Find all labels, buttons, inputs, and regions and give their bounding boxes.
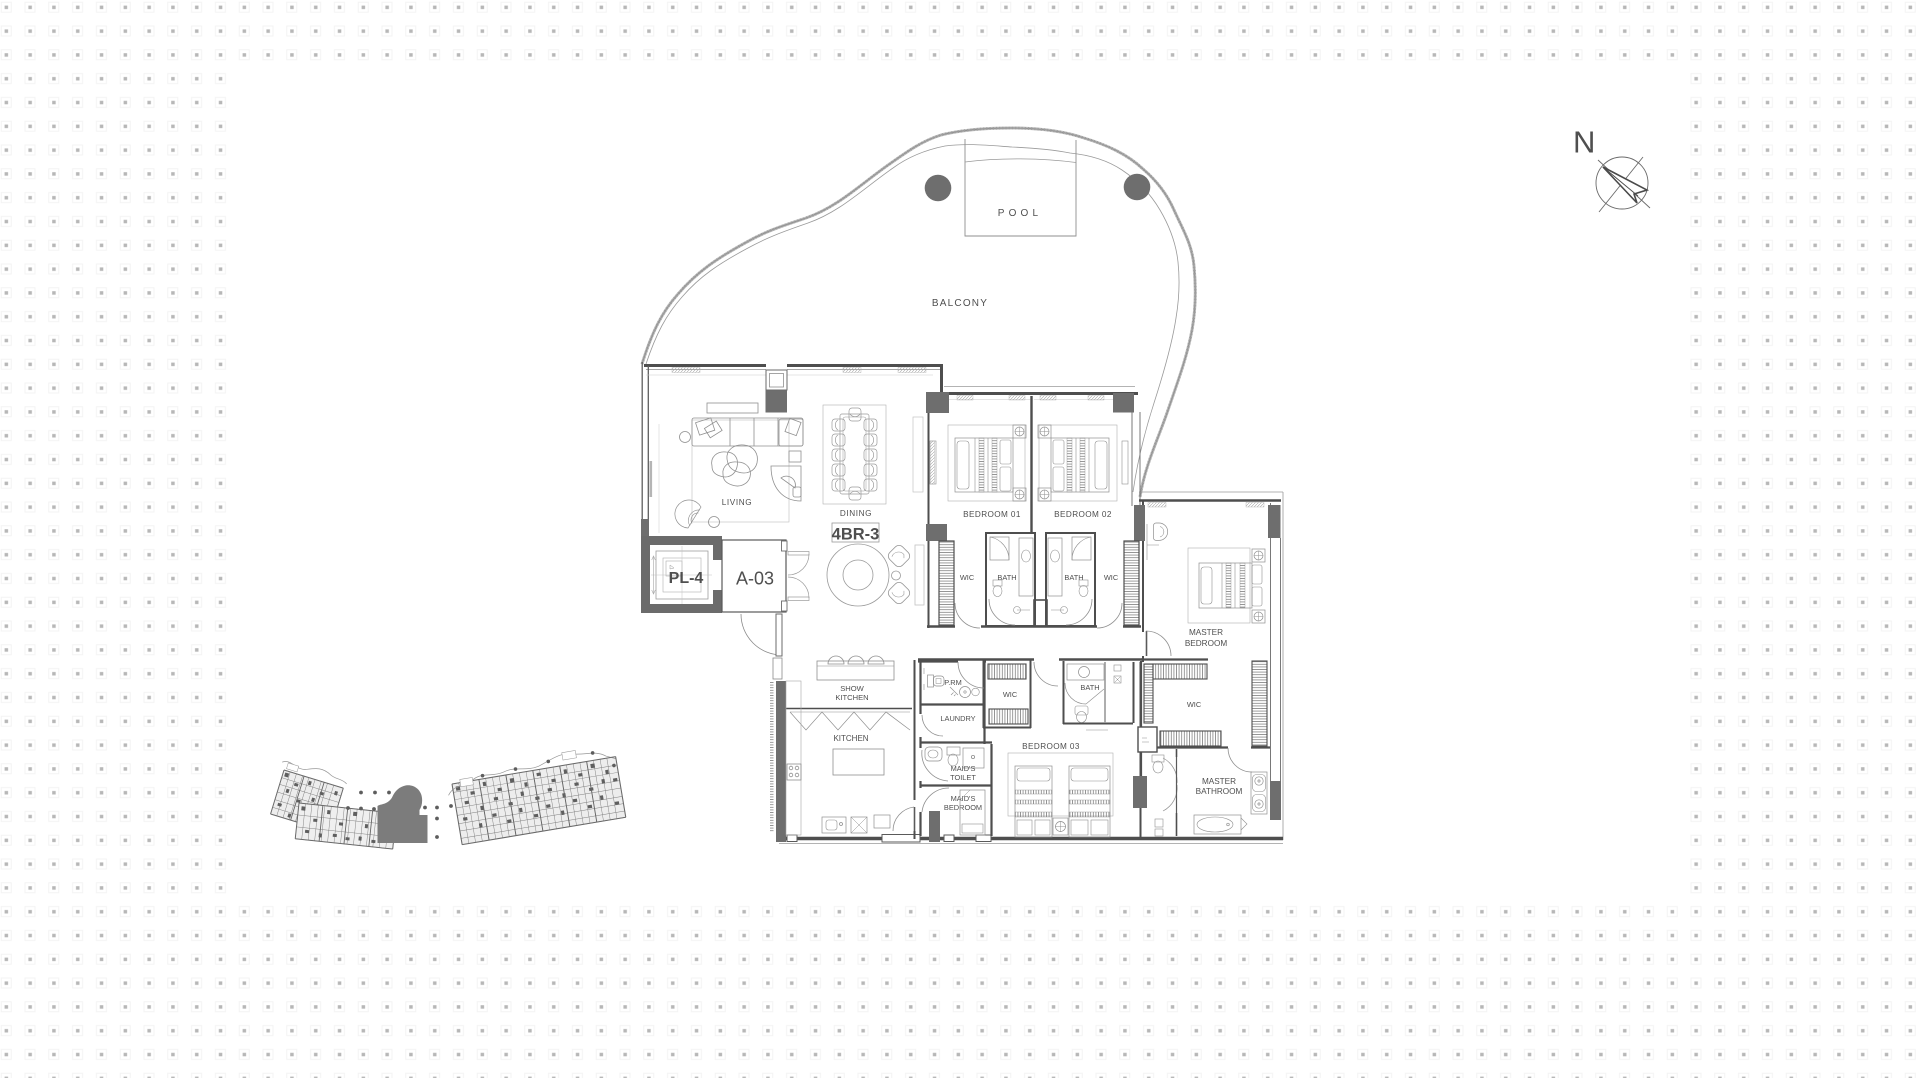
svg-text:WIC: WIC (960, 573, 975, 582)
svg-text:P.RM: P.RM (944, 678, 962, 687)
svg-text:4BR-3: 4BR-3 (832, 526, 880, 544)
svg-text:WIC: WIC (1104, 573, 1119, 582)
svg-text:BEDROOM 03: BEDROOM 03 (1022, 742, 1080, 751)
svg-text:LAUNDRY: LAUNDRY (940, 714, 975, 723)
svg-text:POOL: POOL (998, 208, 1043, 219)
svg-text:BATH: BATH (997, 573, 1016, 582)
svg-text:BATH: BATH (1064, 573, 1083, 582)
svg-text:BALCONY: BALCONY (932, 298, 988, 309)
svg-text:TOILET: TOILET (950, 773, 976, 782)
svg-text:PL-4: PL-4 (669, 570, 704, 587)
svg-text:MASTER: MASTER (1202, 777, 1236, 786)
svg-text:DINING: DINING (840, 509, 872, 518)
svg-text:KITCHEN: KITCHEN (833, 734, 868, 743)
svg-text:MAID'S: MAID'S (951, 794, 976, 803)
svg-text:MASTER: MASTER (1189, 628, 1223, 637)
svg-text:BEDROOM 01: BEDROOM 01 (963, 510, 1021, 519)
svg-text:WIC: WIC (1187, 700, 1202, 709)
svg-text:A-03: A-03 (736, 569, 774, 589)
svg-text:N: N (1573, 125, 1595, 160)
svg-text:BATHROOM: BATHROOM (1196, 787, 1243, 796)
svg-text:BEDROOM 02: BEDROOM 02 (1054, 510, 1112, 519)
svg-text:SHOW: SHOW (840, 684, 864, 693)
svg-text:KITCHEN: KITCHEN (835, 693, 868, 702)
svg-text:BATH: BATH (1080, 683, 1099, 692)
svg-text:BEDROOM: BEDROOM (1185, 639, 1227, 648)
svg-text:WIC: WIC (1003, 690, 1018, 699)
svg-text:MAID'S: MAID'S (951, 764, 976, 773)
svg-text:BEDROOM: BEDROOM (944, 803, 982, 812)
svg-text:LIVING: LIVING (722, 498, 752, 507)
